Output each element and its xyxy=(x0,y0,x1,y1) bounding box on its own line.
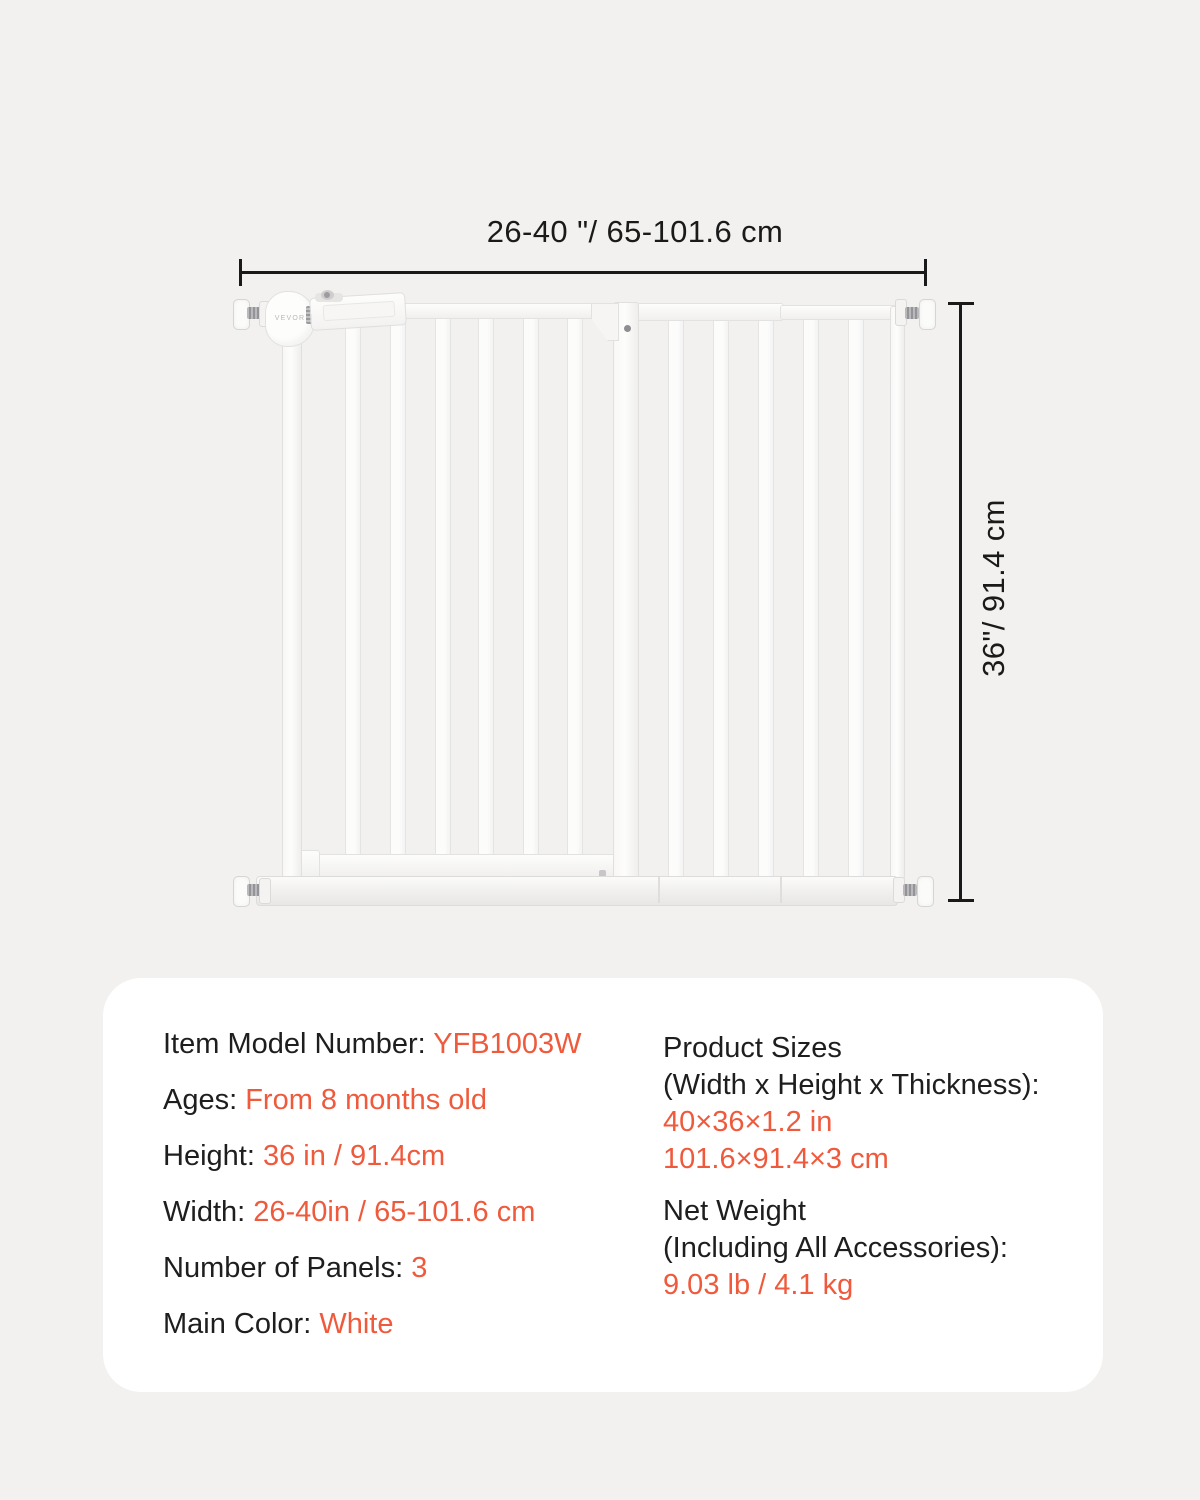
product-infographic: 26-40 "/ 65-101.6 cm 36"/ 91.4 cm xyxy=(0,0,1200,1500)
spec-label: Number of Panels: xyxy=(163,1252,411,1284)
spec-label: Net Weight xyxy=(663,1193,1040,1230)
spec-label: Item Model Number: xyxy=(163,1028,433,1060)
middle-post-screw xyxy=(624,325,631,332)
spec-value: 36 in / 91.4cm xyxy=(263,1140,445,1172)
spec-label: Width: xyxy=(163,1196,253,1228)
spec-left-column: Item Model Number: YFB1003W Ages: From 8… xyxy=(163,1024,582,1344)
spec-value: 3 xyxy=(411,1252,427,1284)
middle-post-bracket xyxy=(591,303,619,341)
spec-label: (Width x Height x Thickness): xyxy=(663,1067,1040,1104)
gate-bar xyxy=(345,310,361,860)
gate-bar xyxy=(848,312,864,880)
spec-block-product-sizes: Product Sizes (Width x Height x Thicknes… xyxy=(663,1030,1040,1178)
spec-value: 26-40in / 65-101.6 cm xyxy=(253,1196,535,1228)
gate-bar xyxy=(803,312,819,880)
gate-bar xyxy=(713,312,729,880)
extension-top-rail-outer xyxy=(637,303,784,321)
end-post xyxy=(890,306,905,880)
knob-flange-icon xyxy=(259,878,271,904)
hinge-post xyxy=(282,322,302,880)
rail-seam xyxy=(780,877,782,903)
gate-bar xyxy=(668,312,684,880)
spec-right-column: Product Sizes (Width x Height x Thicknes… xyxy=(663,1030,1040,1319)
width-dimension-label: 26-40 "/ 65-101.6 cm xyxy=(487,214,783,250)
door-bottom-rail xyxy=(298,854,616,877)
knob-screw-icon xyxy=(903,884,917,896)
height-dimension-tick-top xyxy=(948,302,974,305)
spec-row-model: Item Model Number: YFB1003W xyxy=(163,1024,582,1064)
brand-logo: VEVOR xyxy=(270,315,310,322)
width-dimension-line xyxy=(239,271,927,274)
height-dimension-tick-bottom xyxy=(948,899,974,902)
spec-row-panels: Number of Panels: 3 xyxy=(163,1248,582,1288)
middle-post xyxy=(613,302,639,881)
height-dimension-label: 36"/ 91.4 cm xyxy=(976,499,1012,677)
lock-dot-icon xyxy=(324,292,330,298)
gate-bar xyxy=(478,310,494,860)
spec-value: 40×36×1.2 in xyxy=(663,1104,1040,1141)
spec-block-net-weight: Net Weight (Including All Accessories): … xyxy=(663,1193,1040,1304)
spec-row-ages: Ages: From 8 months old xyxy=(163,1080,582,1120)
width-dimension-tick-right xyxy=(924,259,927,286)
spec-row-height: Height: 36 in / 91.4cm xyxy=(163,1136,582,1176)
width-dimension-tick-left xyxy=(239,259,242,286)
spec-label: Main Color: xyxy=(163,1308,319,1340)
spec-value: 101.6×91.4×3 cm xyxy=(663,1141,1040,1178)
gate-bar xyxy=(758,312,774,880)
spec-value: 9.03 lb / 4.1 kg xyxy=(663,1267,1040,1304)
knob-disc-icon xyxy=(919,299,936,330)
extension-top-rail-inner xyxy=(780,305,900,320)
spec-panel: Item Model Number: YFB1003W Ages: From 8… xyxy=(103,978,1103,1392)
spec-row-width: Width: 26-40in / 65-101.6 cm xyxy=(163,1192,582,1232)
spec-row-color: Main Color: White xyxy=(163,1304,582,1344)
gate-handle-inner-panel xyxy=(323,301,396,321)
spec-label: Product Sizes xyxy=(663,1030,1040,1067)
height-dimension-line xyxy=(959,303,962,902)
rail-seam xyxy=(658,877,660,903)
spec-value: YFB1003W xyxy=(433,1028,581,1060)
bottom-rail xyxy=(256,876,898,906)
spec-label: (Including All Accessories): xyxy=(663,1230,1040,1267)
spec-value: From 8 months old xyxy=(245,1084,487,1116)
gate-bar xyxy=(435,310,451,860)
gate-bar xyxy=(567,310,583,860)
spec-label: Height: xyxy=(163,1140,263,1172)
knob-disc-icon xyxy=(917,876,934,907)
knob-screw-icon xyxy=(905,307,919,319)
spec-label: Ages: xyxy=(163,1084,245,1116)
gate-bar xyxy=(523,310,539,860)
spec-value: White xyxy=(319,1308,393,1340)
gate-bar xyxy=(390,310,406,860)
